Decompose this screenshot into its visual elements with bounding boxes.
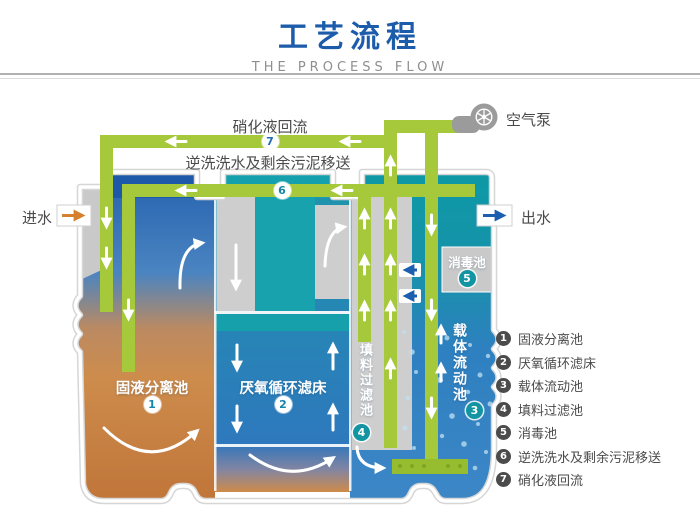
tank3-label: 载体流动池 xyxy=(449,323,469,403)
legend-badge: 4 xyxy=(496,402,511,417)
legend-badge: 7 xyxy=(496,472,511,487)
legend-label: 载体流动池 xyxy=(518,376,583,395)
legend-badge: 2 xyxy=(496,355,511,370)
backwash-downpipe xyxy=(122,184,135,372)
air-pump-label: 空气泵 xyxy=(506,109,551,130)
tank2-divider-upper xyxy=(215,311,350,314)
tank5-label: 消毒池 xyxy=(437,252,497,271)
backwash-label: 逆洗洗水及剩余污泥移送 xyxy=(118,152,418,173)
pipe7-badge: 7 xyxy=(262,133,279,150)
air-diffuser xyxy=(392,459,468,474)
outlet-label: 出水 xyxy=(521,207,551,228)
legend: 1 固液分离池 2 厌氧循环滤床 3 载体流动池 4 填料过滤池 5 消毒池 6… xyxy=(496,331,661,496)
tank2-center-column xyxy=(255,197,315,314)
legend-item: 6 逆洗洗水及剩余污泥移送 xyxy=(496,449,661,465)
pipe6-badge: 6 xyxy=(274,182,291,199)
tank2-teal-band xyxy=(215,314,350,331)
inlet-label: 进水 xyxy=(22,207,52,228)
legend-item: 5 消毒池 xyxy=(496,425,661,441)
legend-label: 消毒池 xyxy=(518,423,557,442)
tank2-baffle-right xyxy=(315,205,350,299)
process-flow-infographic: 工艺流程 THE PROCESS FLOW xyxy=(0,0,700,522)
legend-badge: 5 xyxy=(496,425,511,440)
legend-badge: 1 xyxy=(496,331,511,346)
wall-tank1-tank2 xyxy=(214,196,217,491)
wall-tank2-tank3 xyxy=(349,196,352,491)
tank1-label: 固液分离池 xyxy=(92,377,212,398)
tank4-label: 填料过滤池 xyxy=(355,343,374,418)
legend-badge: 3 xyxy=(496,378,511,393)
legend-label: 固液分离池 xyxy=(518,329,583,348)
legend-item: 3 载体流动池 xyxy=(496,378,661,394)
tank2-label: 厌氧循环滤床 xyxy=(223,377,343,398)
legend-label: 厌氧循环滤床 xyxy=(518,353,596,372)
tank3-badge: 3 xyxy=(466,402,483,419)
tank2-divider-lower xyxy=(215,444,350,447)
legend-item: 2 厌氧循环滤床 xyxy=(496,355,661,371)
legend-item: 4 填料过滤池 xyxy=(496,402,661,418)
tank4-badge: 4 xyxy=(353,424,370,441)
legend-label: 逆洗洗水及剩余污泥移送 xyxy=(518,447,661,466)
inlet xyxy=(57,205,91,226)
air-pump-icon xyxy=(452,104,498,134)
legend-label: 填料过滤池 xyxy=(518,400,583,419)
tank1-badge: 1 xyxy=(144,396,161,413)
backwash-pipe xyxy=(122,184,475,197)
legend-badge: 6 xyxy=(496,449,511,464)
legend-item: 1 固液分离池 xyxy=(496,331,661,347)
outlet xyxy=(477,205,512,226)
legend-item: 7 硝化液回流 xyxy=(496,472,661,488)
tank2-badge: 2 xyxy=(275,396,292,413)
legend-label: 硝化液回流 xyxy=(518,470,583,489)
tank5-badge: 5 xyxy=(459,270,476,287)
